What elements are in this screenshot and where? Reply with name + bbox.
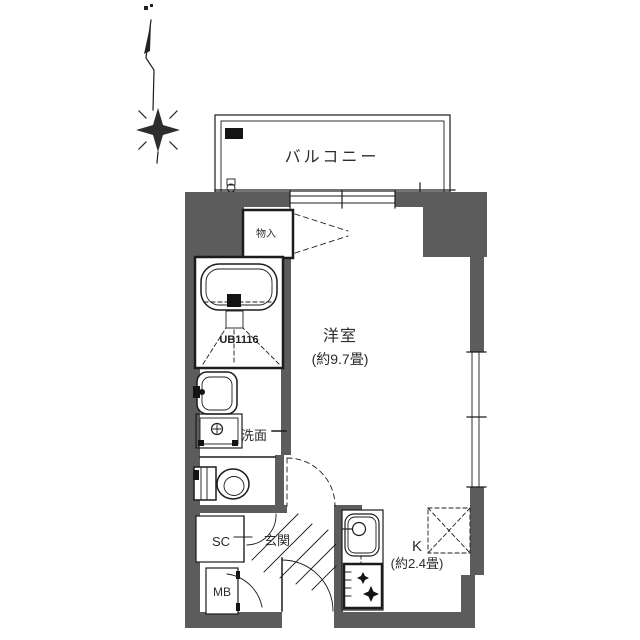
- kitchen-faucet: [353, 523, 366, 536]
- compass-top-mark: [144, 6, 148, 10]
- wall-block-bath-corner: [200, 207, 244, 258]
- compass-top-mark: [150, 4, 153, 7]
- floor-plan-drawing: バルコニー 物入: [0, 0, 640, 640]
- vanity-faucet: [193, 386, 200, 398]
- kitchen-size-label: (約2.4畳): [391, 556, 444, 571]
- toilet: [193, 467, 249, 500]
- vanity-faucet-knob: [199, 389, 205, 395]
- washroom-label: 洗面: [241, 428, 267, 443]
- entrance-label: 玄関: [264, 533, 290, 548]
- wall-top-left: [185, 192, 290, 207]
- main-room-size-label: (約9.7畳): [312, 351, 369, 367]
- entrance-step-hatching: [252, 514, 336, 590]
- wall-bottom-right: [334, 612, 475, 628]
- balcony-label: バルコニー: [285, 149, 380, 166]
- stove: [344, 564, 382, 608]
- floor-plan: バルコニー 物入: [0, 0, 640, 640]
- wall-toilet-right: [275, 455, 284, 507]
- kitchen: K (約2.4畳): [342, 508, 470, 610]
- kitchen-label: K: [412, 538, 422, 555]
- wall-right-lower: [470, 487, 484, 575]
- door-arc-dashed: [287, 458, 335, 506]
- entrance-hall: SC 玄関 MB: [196, 514, 336, 614]
- unit-bath: UB1116: [195, 257, 283, 368]
- bath-faucet: [227, 294, 241, 307]
- toilet-flush-handle: [193, 470, 199, 480]
- wall-hall-top: [185, 505, 287, 513]
- main-room: 洋室 (約9.7畳): [312, 327, 369, 367]
- entrance-door-arc: [282, 560, 333, 611]
- meter-box-hinge: [236, 603, 240, 611]
- wall-pillar-top-right: [423, 207, 487, 257]
- washer-pan-corner: [232, 440, 238, 446]
- storage-closet: 物入: [243, 210, 348, 258]
- hall-door-swing: [287, 458, 335, 506]
- washer-drain-cross: [213, 425, 221, 433]
- washer-pan-corner: [198, 440, 204, 446]
- storage-label: 物入: [256, 227, 276, 240]
- balcony-hatch-box: [225, 128, 243, 139]
- wall-right-upper: [470, 257, 484, 352]
- shoe-closet-label: SC: [212, 534, 230, 549]
- main-room-label: 洋室: [323, 327, 357, 345]
- refrigerator-space-cross: [428, 508, 470, 553]
- washroom: 洗面: [193, 372, 286, 457]
- meter-box-label: MB: [213, 585, 231, 599]
- window-right-wall: [467, 352, 486, 487]
- unit-bath-label: UB1116: [219, 334, 258, 346]
- wall-right-step: [461, 575, 475, 614]
- storage-door-swing: [295, 214, 348, 253]
- wall-top-right: [395, 192, 487, 207]
- compass-icon: [136, 4, 180, 163]
- balcony-area: バルコニー: [215, 115, 455, 199]
- bath-box: [195, 257, 283, 368]
- window-balcony-sliding-door: [290, 191, 395, 208]
